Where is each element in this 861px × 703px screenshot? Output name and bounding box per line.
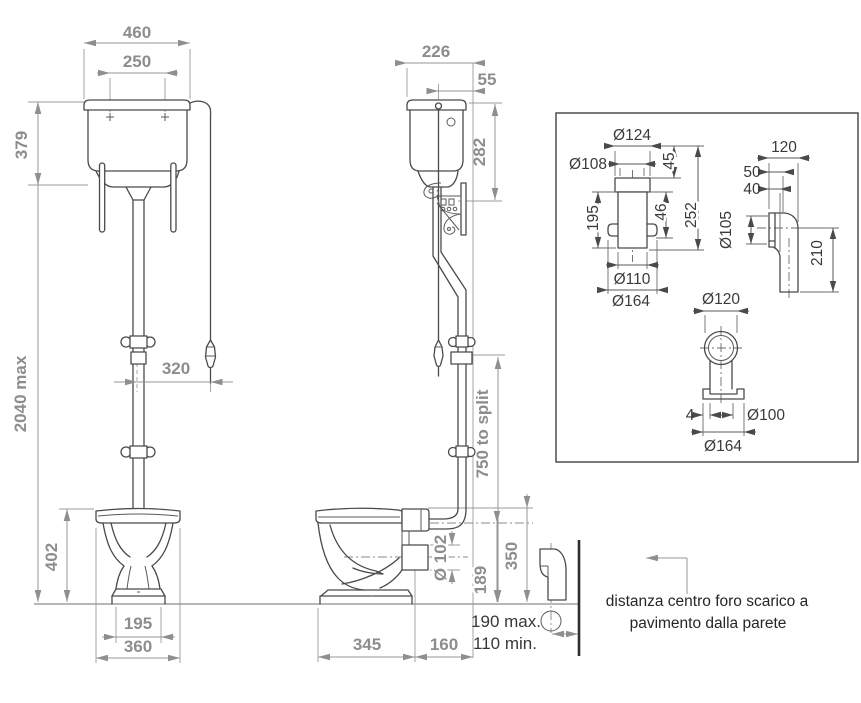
- fixing-cross-marks: [106, 113, 169, 121]
- dim-elbow-40: 40: [743, 181, 761, 198]
- dim-split-750: 750 to split: [473, 389, 492, 478]
- dim-body-195: 195: [585, 205, 602, 231]
- outlet-spigot: [402, 545, 428, 570]
- dim-elbow-dia-105: Ø105: [718, 211, 735, 249]
- dim-bowl-height-402: 402: [42, 543, 61, 571]
- drain-distance-detail: distanza centro foro scarico a pavimento…: [540, 540, 809, 656]
- dim-outlet-dia-102: Ø 102: [431, 535, 450, 581]
- dim-total-height-2040: 2040 max: [11, 355, 30, 432]
- side-extension-lines: [318, 68, 533, 662]
- connector-detail: Ø124 Ø108 45 46 252 195 Ø110 Ø164: [569, 127, 704, 310]
- floor-outlet-detail: Ø120 4 Ø100 Ø164: [686, 291, 786, 455]
- dim-length-252: 252: [683, 202, 700, 228]
- drain-elbow: [540, 549, 566, 600]
- dim-cistern-height-379: 379: [12, 131, 31, 159]
- dim-bowl-depth-345: 345: [353, 635, 381, 654]
- ornate-bracket: [424, 183, 466, 235]
- front-bowl: [96, 509, 180, 605]
- side-bowl: [316, 508, 429, 604]
- elbow-detail: 120 50 40 Ø105 210: [718, 139, 839, 298]
- dim-fixing-250: 250: [123, 52, 151, 71]
- dim-collar-dia-124: Ø124: [613, 127, 651, 144]
- cistern-side-boss: [447, 118, 455, 126]
- flush-pipe-coupling: [131, 352, 146, 364]
- dim-cistern-depth-226: 226: [422, 42, 450, 61]
- dim-base-width-195: 195: [124, 614, 152, 633]
- side-cistern: [407, 100, 466, 376]
- dim-ring-dia-120: Ø120: [702, 291, 740, 308]
- dim-drain-max: 190 max.: [471, 612, 541, 631]
- front-cistern: [84, 100, 216, 509]
- wc-installation-drawing: 460 250 379 2040 max 320 402 195 360: [0, 0, 861, 703]
- dim-projection-160: 160: [430, 635, 458, 654]
- dim-elbow-height-210: 210: [809, 240, 826, 266]
- dim-rim-height-350: 350: [502, 542, 521, 570]
- dim-lug-46: 46: [653, 203, 670, 220]
- dim-chain-offset-320: 320: [162, 359, 190, 378]
- front-view: 460 250 379 2040 max 320 402 195 360: [11, 23, 233, 663]
- elbow-dim-lines: [751, 158, 833, 292]
- dim-width-460: 460: [123, 23, 151, 42]
- side-view: 226 55 282 750 to split Ø 102 189 350 34…: [316, 42, 541, 662]
- dim-outlet-flange-164: Ø164: [704, 438, 742, 455]
- dim-bowl-width-360: 360: [124, 637, 152, 656]
- chain-handle: [206, 340, 216, 368]
- caption-line-1: distanza centro foro scarico a: [606, 593, 809, 610]
- inlet-spud: [402, 509, 429, 531]
- dim-pipe-dia-100: Ø100: [747, 407, 785, 424]
- dim-cistern-side-282: 282: [470, 138, 489, 166]
- dim-elbow-50: 50: [743, 164, 761, 181]
- hanger-rod-right: [171, 163, 176, 232]
- caption-leader: [646, 558, 687, 594]
- dim-flange-dia-164: Ø164: [612, 293, 650, 310]
- dim-lip-4: 4: [686, 407, 695, 424]
- dim-pipe-dia-110: Ø110: [614, 271, 651, 288]
- fittings-detail-box: Ø124 Ø108 45 46 252 195 Ø110 Ø164: [556, 113, 858, 462]
- side-chain-handle: [434, 340, 443, 367]
- dim-outlet-height-189: 189: [471, 566, 490, 594]
- side-pipe-coupling: [451, 352, 472, 364]
- technical-drawing-page: 460 250 379 2040 max 320 402 195 360: [0, 0, 861, 703]
- dim-elbow-width-120: 120: [771, 139, 797, 156]
- flush-lever-arm: [190, 101, 211, 118]
- front-dimensions: [38, 43, 233, 658]
- dim-collar-45: 45: [661, 152, 678, 169]
- outlet-extensions: [703, 315, 744, 436]
- caption-line-2: pavimento dalla parete: [630, 615, 787, 632]
- hanger-rod-left: [100, 163, 105, 232]
- dim-pull-offset-55: 55: [478, 70, 497, 89]
- dim-inner-dia-108: Ø108: [569, 156, 607, 173]
- dim-drain-min: 110 min.: [473, 634, 537, 653]
- pull-knob: [436, 103, 442, 109]
